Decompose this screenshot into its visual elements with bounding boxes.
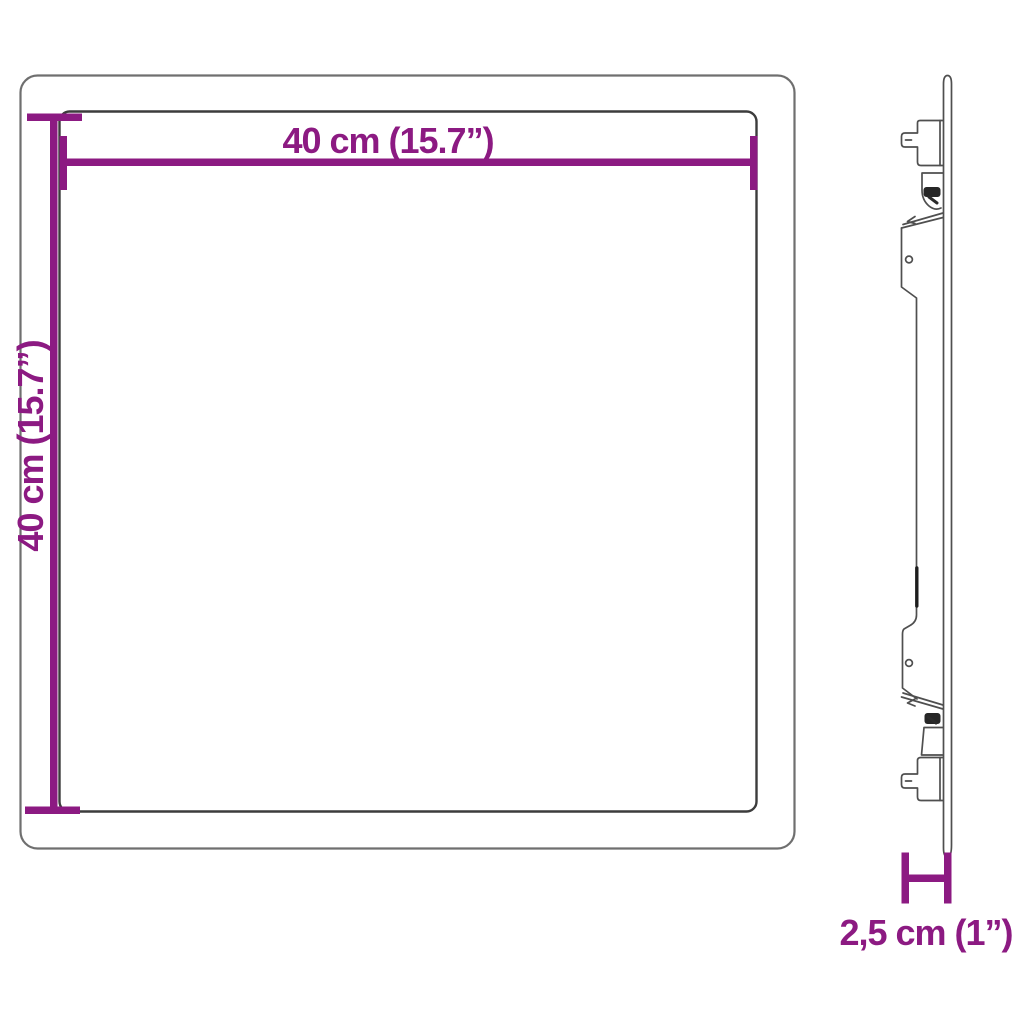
front-view [21,76,795,849]
width-dimension-label: 40 cm (15.7”) [282,123,493,159]
side-panel-profile [944,76,952,858]
bottom-latch-housing [922,728,944,756]
screw-hole-bottom [906,660,913,667]
side-view [902,76,952,858]
top-mount-bracket [902,121,944,166]
height-dimension-label: 40 cm (15.7”) [13,340,49,551]
height-dim-bottom-cap [25,807,80,815]
depth-dim-right-cap [944,853,952,904]
width-dim-right-cap [750,136,758,190]
bottom-mount-bracket [902,758,944,801]
depth-dimension-label: 2,5 cm (1”) [839,915,1012,951]
top-latch-spring [924,187,941,197]
wall-rail [902,228,918,699]
diagram-linework [0,0,1024,1024]
rail-top-tab [908,217,916,224]
rail-bottom-tab [908,699,916,706]
front-panel-outer-edge [21,76,795,849]
product-dimension-diagram: 40 cm (15.7”) 40 cm (15.7”) 2,5 cm (1”) [0,0,1024,1024]
depth-dimension [902,853,952,904]
front-panel-inner-edge [60,112,757,812]
screw-hole-top [906,256,913,263]
height-dim-line [50,114,58,815]
top-latch-detail [929,197,937,203]
